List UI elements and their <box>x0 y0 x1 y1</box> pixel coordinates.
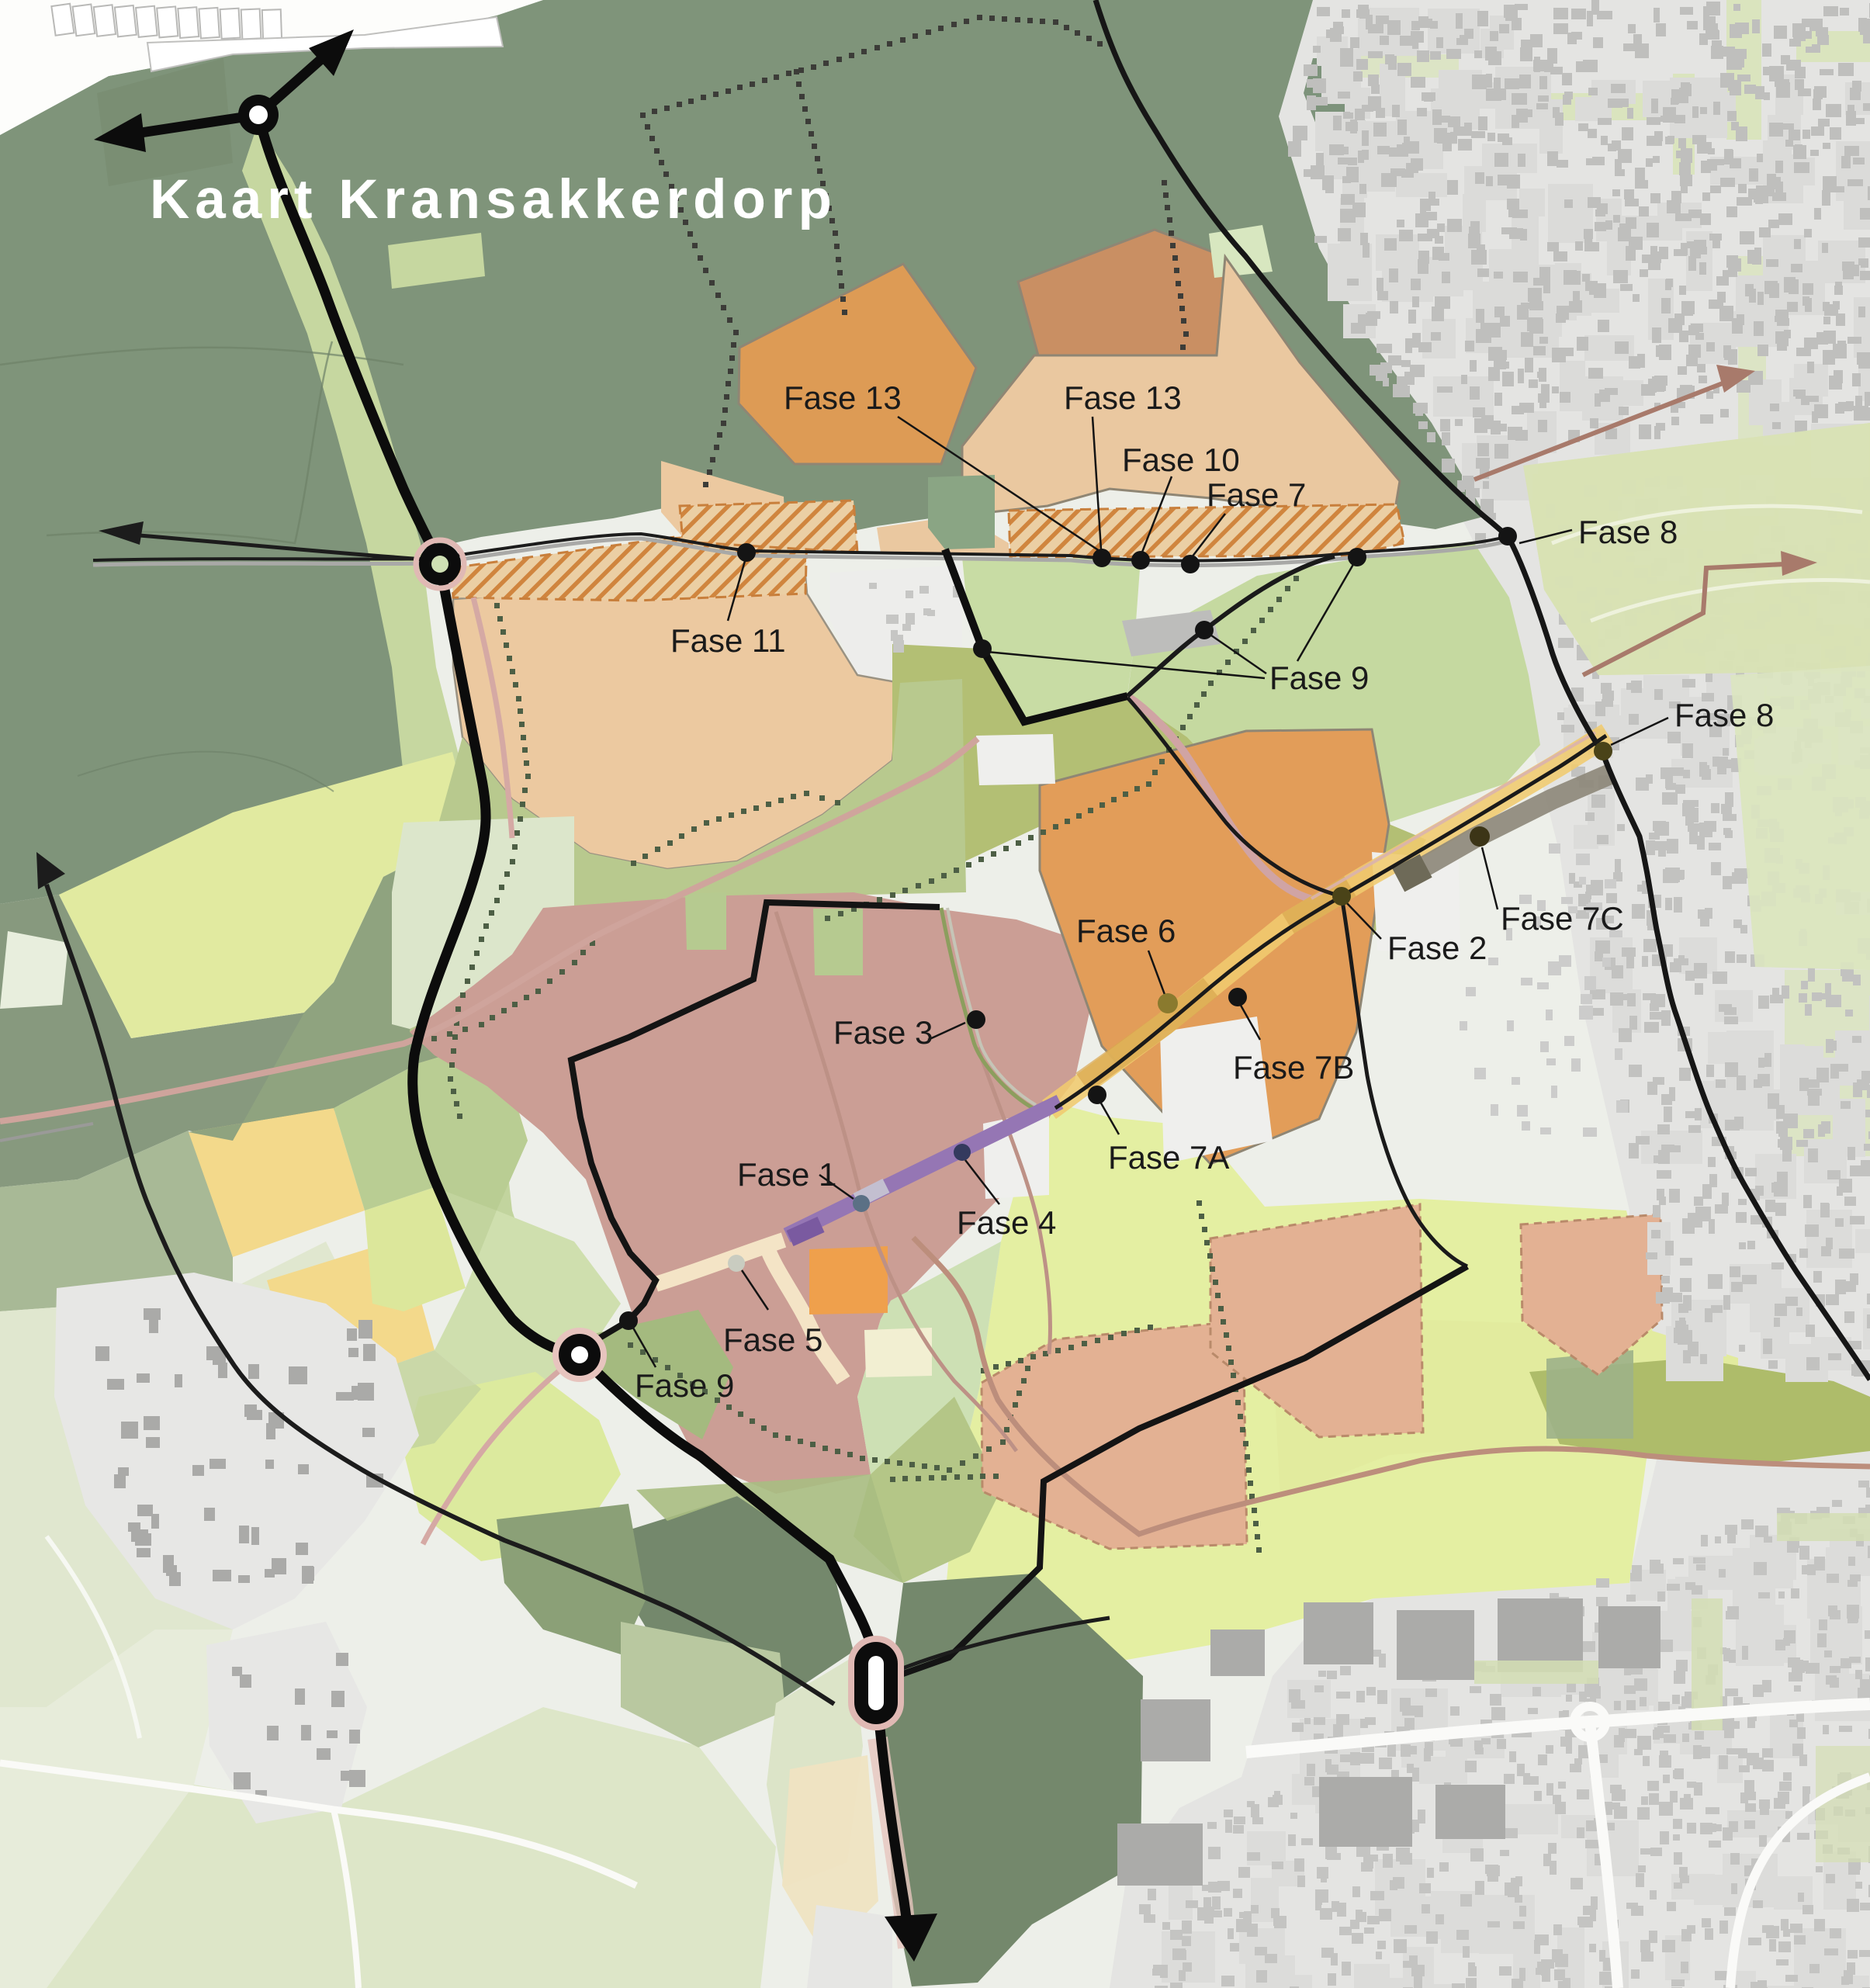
svg-text:Fase 7B: Fase 7B <box>1233 1049 1354 1086</box>
svg-text:Fase 7: Fase 7 <box>1207 476 1306 513</box>
svg-text:Fase 9: Fase 9 <box>1269 660 1369 696</box>
svg-text:Fase 7A: Fase 7A <box>1108 1139 1229 1176</box>
svg-text:Kaart Kransakkerdorp: Kaart Kransakkerdorp <box>150 169 837 230</box>
svg-text:Fase 7C: Fase 7C <box>1501 900 1624 937</box>
svg-text:Fase 5: Fase 5 <box>723 1321 822 1358</box>
svg-text:Fase 6: Fase 6 <box>1076 913 1176 949</box>
svg-text:Fase 8: Fase 8 <box>1674 697 1774 733</box>
svg-text:Fase 10: Fase 10 <box>1122 442 1240 478</box>
svg-text:Fase 1: Fase 1 <box>737 1156 836 1193</box>
svg-text:Fase 11: Fase 11 <box>670 622 786 659</box>
svg-text:Fase 3: Fase 3 <box>833 1014 933 1051</box>
svg-text:Fase 9: Fase 9 <box>635 1367 734 1404</box>
svg-text:Fase 8: Fase 8 <box>1578 514 1678 550</box>
svg-text:Fase 13: Fase 13 <box>1064 379 1182 416</box>
svg-text:Fase 2: Fase 2 <box>1387 930 1487 966</box>
svg-text:Fase 4: Fase 4 <box>957 1204 1056 1241</box>
svg-text:Fase 13: Fase 13 <box>784 379 902 416</box>
